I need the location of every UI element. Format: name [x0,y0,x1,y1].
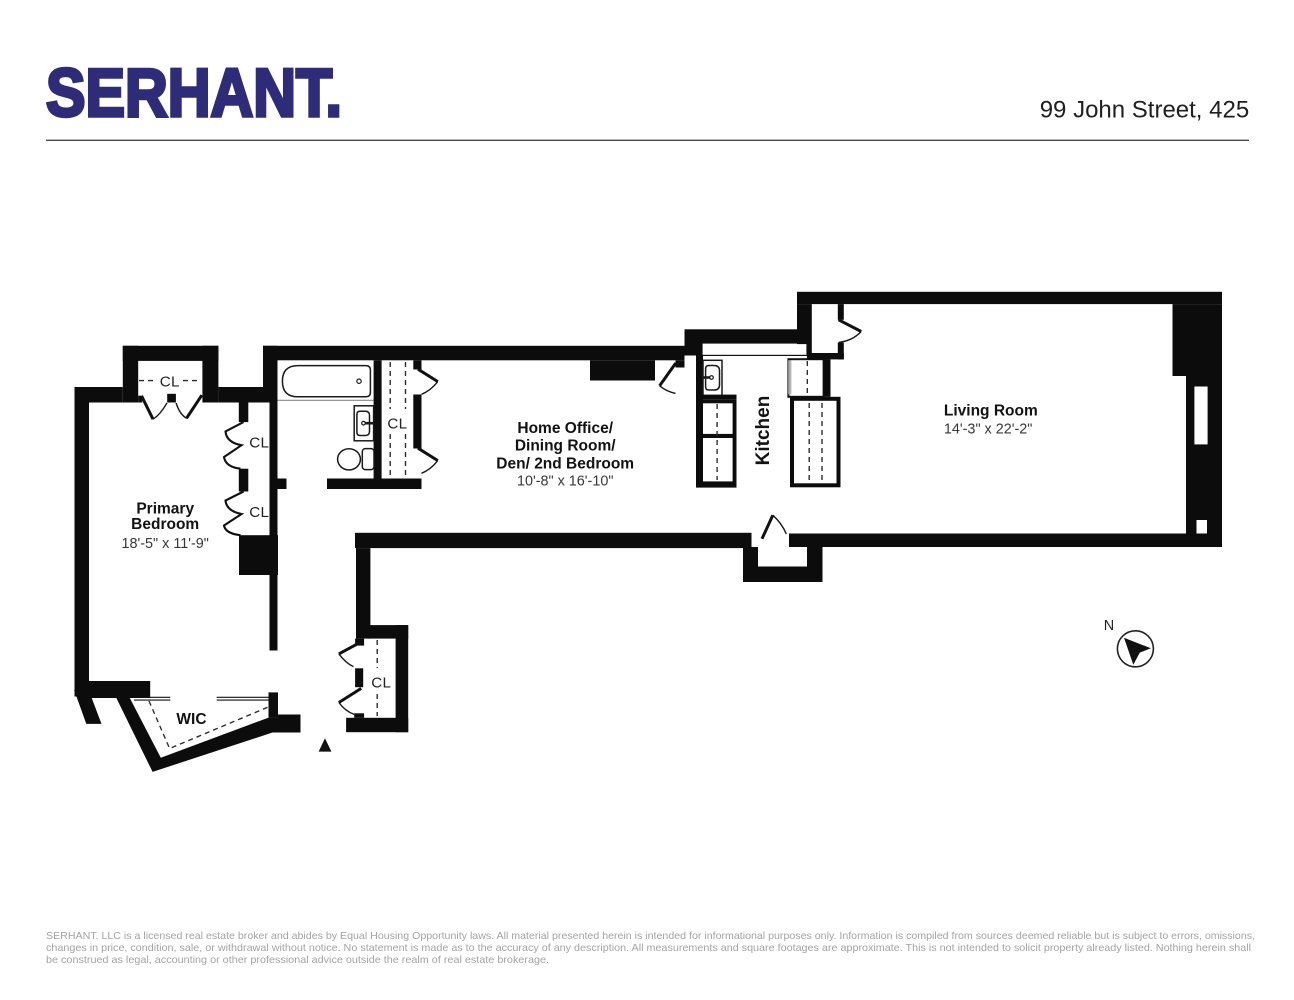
svg-text:Kitchen: Kitchen [753,396,774,466]
svg-text:changes in price, condition, s: changes in price, condition, sale, or wi… [46,943,1251,954]
svg-text:CL: CL [249,435,269,452]
svg-text:99 John Street, 425: 99 John Street, 425 [1040,96,1249,123]
svg-text:CL: CL [387,415,407,432]
svg-text:14'-3" x 22'-2": 14'-3" x 22'-2" [944,422,1033,438]
svg-text:Bedroom: Bedroom [131,516,199,533]
svg-text:CL: CL [371,675,391,692]
svg-text:SERHANT. LLC is a licensed rea: SERHANT. LLC is a licensed real estate b… [46,931,1255,942]
svg-text:WIC: WIC [176,711,206,728]
svg-text:Living Room: Living Room [944,402,1038,419]
svg-text:CL: CL [249,504,269,521]
svg-text:Primary: Primary [136,500,194,517]
svg-text:be construed as legal, account: be construed as legal, accounting or oth… [46,955,549,966]
svg-text:Home Office/: Home Office/ [517,420,613,437]
svg-text:N: N [1104,618,1114,634]
svg-text:10'-8" x 16'-10": 10'-8" x 16'-10" [517,473,614,489]
svg-text:CL: CL [160,373,180,390]
svg-text:SERHANT.: SERHANT. [46,55,342,131]
svg-text:18'-5" x 11'-9": 18'-5" x 11'-9" [121,536,208,552]
svg-text:Dining Room/: Dining Room/ [515,438,616,455]
svg-text:Den/ 2nd Bedroom: Den/ 2nd Bedroom [496,456,634,473]
